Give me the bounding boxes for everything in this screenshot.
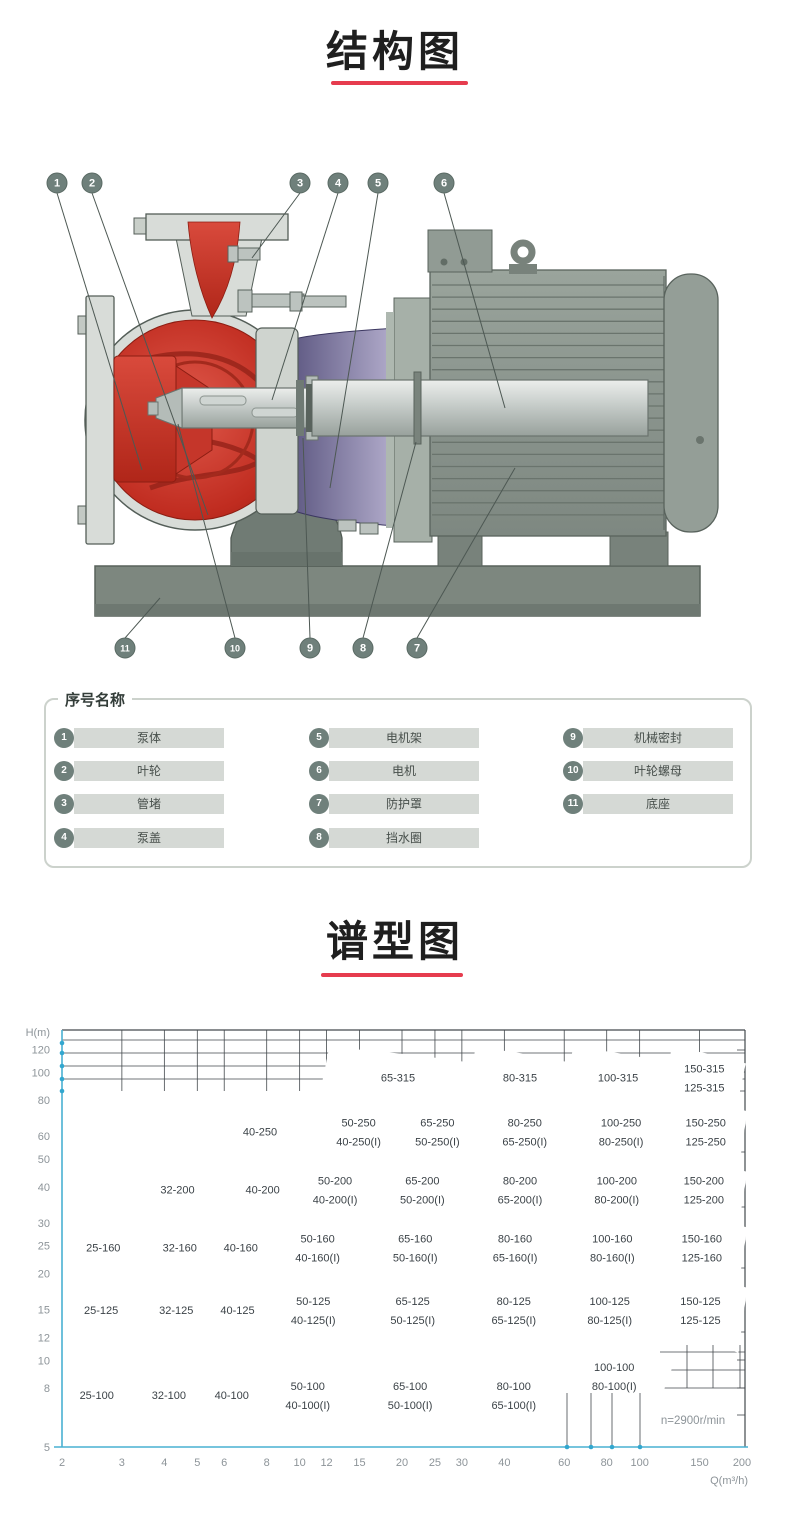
svg-text:80-125: 80-125 <box>497 1296 531 1308</box>
svg-text:3: 3 <box>119 1457 125 1469</box>
part-number-badge: 1 <box>54 728 74 748</box>
svg-text:10: 10 <box>38 1355 50 1367</box>
svg-text:80: 80 <box>38 1095 50 1107</box>
mechanical-seal <box>296 380 312 436</box>
part-number-badge: 10 <box>563 761 583 781</box>
svg-text:100-125: 100-125 <box>589 1296 629 1308</box>
svg-text:40-100: 40-100 <box>215 1390 249 1402</box>
part-name-2: 叶轮 <box>74 761 224 781</box>
svg-text:120: 120 <box>32 1044 50 1056</box>
svg-text:80-315: 80-315 <box>503 1072 537 1084</box>
svg-text:5: 5 <box>375 178 381 190</box>
svg-text:40: 40 <box>498 1457 510 1469</box>
svg-text:40-125: 40-125 <box>220 1305 254 1317</box>
part-name-7: 防护罩 <box>329 794 479 814</box>
svg-text:60: 60 <box>38 1131 50 1143</box>
svg-text:50-160: 50-160 <box>300 1234 334 1246</box>
svg-text:65-160(I): 65-160(I) <box>493 1253 538 1265</box>
part-number-badge: 6 <box>309 761 329 781</box>
svg-text:80-200: 80-200 <box>503 1176 537 1188</box>
base-plate <box>95 566 700 616</box>
svg-text:4: 4 <box>161 1457 167 1469</box>
svg-text:15: 15 <box>38 1305 50 1317</box>
svg-text:80-160: 80-160 <box>498 1234 532 1246</box>
svg-text:1: 1 <box>54 178 60 190</box>
part-name-9: 机械密封 <box>583 728 733 748</box>
spectrum-section-title: 谱型图 <box>0 908 790 969</box>
svg-text:Q(m³/h): Q(m³/h) <box>710 1475 748 1487</box>
svg-text:60: 60 <box>558 1457 570 1469</box>
svg-text:4: 4 <box>335 178 342 190</box>
svg-text:65-200(I): 65-200(I) <box>498 1195 543 1207</box>
part-number-badge: 2 <box>54 761 74 781</box>
svg-text:100-250: 100-250 <box>601 1118 641 1130</box>
svg-text:125-125: 125-125 <box>680 1315 720 1327</box>
svg-text:5: 5 <box>44 1442 50 1454</box>
svg-text:10: 10 <box>230 644 240 654</box>
svg-text:80-250: 80-250 <box>508 1118 542 1130</box>
svg-text:80-100: 80-100 <box>497 1381 531 1393</box>
svg-text:80: 80 <box>601 1457 613 1469</box>
part-name-6: 电机 <box>329 761 479 781</box>
svg-text:65-250: 65-250 <box>420 1118 454 1130</box>
svg-text:32-125: 32-125 <box>159 1305 193 1317</box>
svg-text:125-315: 125-315 <box>684 1082 724 1094</box>
svg-text:80-160(I): 80-160(I) <box>590 1253 635 1265</box>
svg-text:65-200: 65-200 <box>405 1176 439 1188</box>
svg-text:50-160(I): 50-160(I) <box>393 1253 438 1265</box>
part-name-3: 管堵 <box>74 794 224 814</box>
svg-text:100-100: 100-100 <box>594 1362 634 1374</box>
svg-text:150-315: 150-315 <box>684 1063 724 1075</box>
svg-text:30: 30 <box>456 1457 468 1469</box>
svg-text:125-250: 125-250 <box>685 1137 725 1149</box>
svg-text:200: 200 <box>733 1457 751 1469</box>
lifting-eye <box>514 243 532 261</box>
svg-text:32-100: 32-100 <box>152 1390 186 1402</box>
svg-text:7: 7 <box>414 643 420 655</box>
svg-text:2: 2 <box>59 1457 65 1469</box>
water-slinger <box>414 372 421 444</box>
svg-text:10: 10 <box>294 1457 306 1469</box>
svg-text:40-250: 40-250 <box>243 1127 277 1139</box>
svg-text:150: 150 <box>690 1457 708 1469</box>
part-name-4: 泵盖 <box>74 828 224 848</box>
svg-text:65-100(I): 65-100(I) <box>491 1400 536 1412</box>
svg-text:80-100(I): 80-100(I) <box>592 1381 637 1393</box>
part-number-badge: 5 <box>309 728 329 748</box>
svg-text:65-250(I): 65-250(I) <box>502 1137 547 1149</box>
svg-text:40-160(I): 40-160(I) <box>295 1253 340 1265</box>
part-number-badge: 11 <box>563 794 583 814</box>
svg-text:20: 20 <box>396 1457 408 1469</box>
speed-annotation: n=2900r/min <box>661 1415 725 1427</box>
svg-text:50-250: 50-250 <box>341 1118 375 1130</box>
svg-text:H(m): H(m) <box>26 1027 50 1039</box>
svg-text:32-200: 32-200 <box>160 1185 194 1197</box>
svg-text:65-125: 65-125 <box>396 1296 430 1308</box>
svg-text:40-200: 40-200 <box>246 1185 280 1197</box>
svg-text:50-125: 50-125 <box>296 1296 330 1308</box>
structure-section-title: 结构图 <box>0 18 790 79</box>
svg-text:8: 8 <box>264 1457 270 1469</box>
svg-text:2: 2 <box>89 178 95 190</box>
structure-title-underline <box>331 81 468 85</box>
svg-text:50-100(I): 50-100(I) <box>388 1400 433 1412</box>
callout-4: 4 <box>328 173 348 193</box>
callout-6: 6 <box>434 173 454 193</box>
callout-10: 10 <box>225 638 245 658</box>
svg-text:100: 100 <box>32 1067 50 1079</box>
svg-text:65-125(I): 65-125(I) <box>491 1315 536 1327</box>
svg-text:8: 8 <box>360 643 366 655</box>
svg-text:80-250(I): 80-250(I) <box>599 1137 644 1149</box>
svg-text:50-125(I): 50-125(I) <box>390 1315 435 1327</box>
svg-text:100-200: 100-200 <box>597 1176 637 1188</box>
svg-text:6: 6 <box>441 178 447 190</box>
svg-text:5: 5 <box>194 1457 200 1469</box>
part-name-11: 底座 <box>583 794 733 814</box>
svg-text:50-250(I): 50-250(I) <box>415 1137 460 1149</box>
part-name-8: 挡水圈 <box>329 828 479 848</box>
part-name-1: 泵体 <box>74 728 224 748</box>
svg-text:50-200(I): 50-200(I) <box>400 1195 445 1207</box>
motor-foot-rear <box>610 532 668 566</box>
part-number-badge: 4 <box>54 828 74 848</box>
svg-text:150-125: 150-125 <box>680 1296 720 1308</box>
svg-text:80-200(I): 80-200(I) <box>594 1195 639 1207</box>
svg-text:3: 3 <box>297 178 303 190</box>
svg-text:40-125(I): 40-125(I) <box>291 1315 336 1327</box>
svg-text:50-100: 50-100 <box>291 1381 325 1393</box>
svg-text:25: 25 <box>429 1457 441 1469</box>
part-number-badge: 8 <box>309 828 329 848</box>
svg-text:11: 11 <box>120 644 130 654</box>
callout-7: 7 <box>407 638 427 658</box>
parts-list-card: 序号名称 1泵体2叶轮3管堵4泵盖5电机架6电机7防护罩8挡水圈9机械密封10叶… <box>44 698 752 868</box>
svg-text:12: 12 <box>38 1332 50 1344</box>
svg-text:15: 15 <box>353 1457 365 1469</box>
svg-text:8: 8 <box>44 1383 50 1395</box>
part-name-10: 叶轮螺母 <box>583 761 733 781</box>
svg-text:40-160: 40-160 <box>224 1243 258 1255</box>
spectrum-chart: 65-31580-315100-315150-315125-31540-2505… <box>0 1000 790 1512</box>
svg-text:40-200(I): 40-200(I) <box>313 1195 358 1207</box>
svg-text:125-200: 125-200 <box>684 1195 724 1207</box>
svg-text:80-125(I): 80-125(I) <box>587 1315 632 1327</box>
svg-text:150-200: 150-200 <box>684 1176 724 1188</box>
svg-text:40-250(I): 40-250(I) <box>336 1137 381 1149</box>
svg-text:25: 25 <box>38 1241 50 1253</box>
svg-text:32-160: 32-160 <box>163 1243 197 1255</box>
callout-3: 3 <box>290 173 310 193</box>
svg-text:125-160: 125-160 <box>682 1253 722 1265</box>
svg-text:12: 12 <box>320 1457 332 1469</box>
page: 结构图 <box>0 0 790 1520</box>
callout-9: 9 <box>300 638 320 658</box>
pump-foot-block <box>231 552 342 566</box>
svg-text:150-250: 150-250 <box>685 1118 725 1130</box>
part-number-badge: 7 <box>309 794 329 814</box>
callout-8: 8 <box>353 638 373 658</box>
pump-cross-section-diagram: 1234561110987 <box>0 150 790 675</box>
svg-text:65-315: 65-315 <box>381 1072 415 1084</box>
svg-text:65-100: 65-100 <box>393 1381 427 1393</box>
svg-text:150-160: 150-160 <box>682 1234 722 1246</box>
svg-text:50: 50 <box>38 1154 50 1166</box>
svg-text:65-160: 65-160 <box>398 1234 432 1246</box>
svg-text:100-160: 100-160 <box>592 1234 632 1246</box>
callout-5: 5 <box>368 173 388 193</box>
svg-text:30: 30 <box>38 1218 50 1230</box>
parts-list-title: 序号名称 <box>58 689 132 710</box>
callout-1: 1 <box>47 173 67 193</box>
svg-text:40: 40 <box>38 1182 50 1194</box>
callout-11: 11 <box>115 638 135 658</box>
svg-text:25-160: 25-160 <box>86 1243 120 1255</box>
svg-text:50-200: 50-200 <box>318 1176 352 1188</box>
svg-text:6: 6 <box>221 1457 227 1469</box>
svg-text:9: 9 <box>307 643 313 655</box>
part-number-badge: 3 <box>54 794 74 814</box>
part-number-badge: 9 <box>563 728 583 748</box>
svg-text:20: 20 <box>38 1269 50 1281</box>
spectrum-title-underline <box>321 973 463 977</box>
svg-text:25-125: 25-125 <box>84 1305 118 1317</box>
svg-text:25-100: 25-100 <box>80 1390 114 1402</box>
svg-text:100: 100 <box>630 1457 648 1469</box>
part-name-5: 电机架 <box>329 728 479 748</box>
svg-text:100-315: 100-315 <box>598 1072 638 1084</box>
svg-text:40-100(I): 40-100(I) <box>285 1400 330 1412</box>
callout-2: 2 <box>82 173 102 193</box>
